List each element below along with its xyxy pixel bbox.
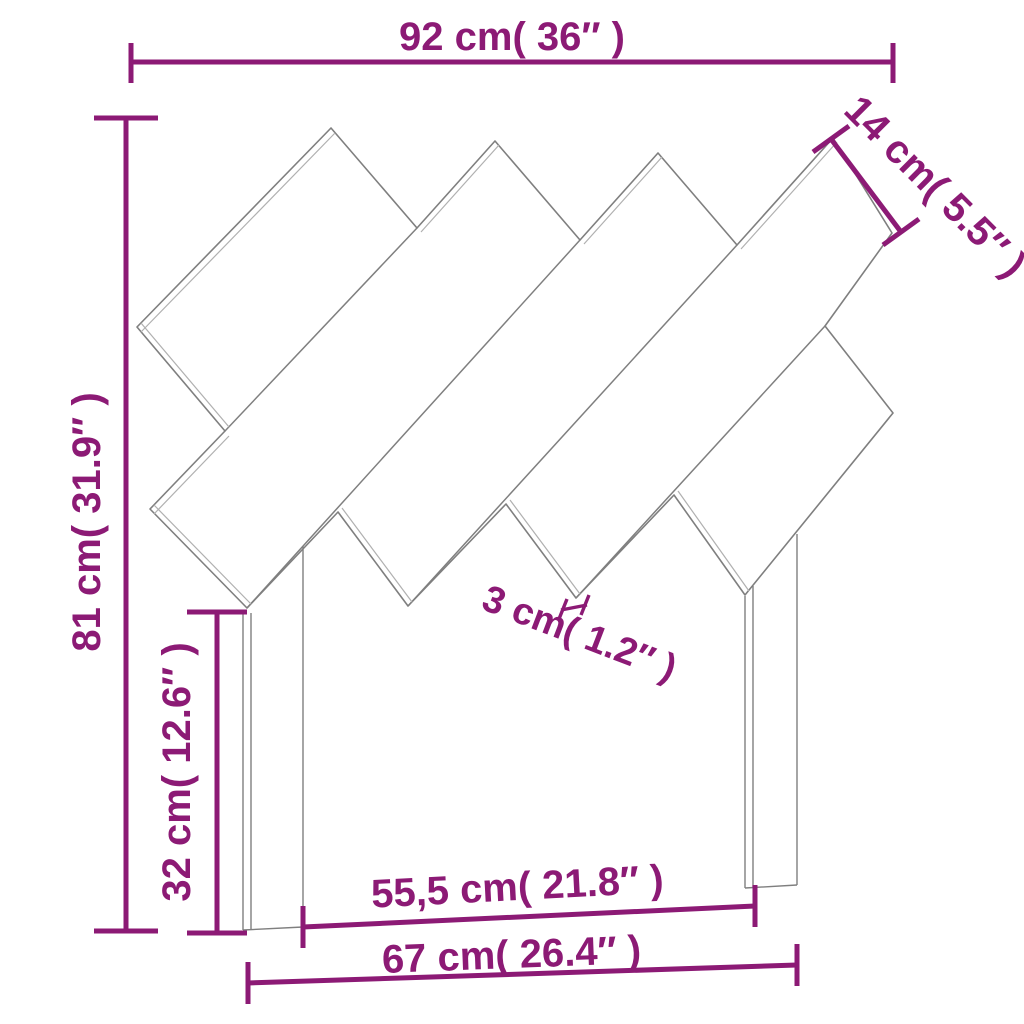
overall-height-dimension: 81 cm( 31.9″ ): [65, 118, 158, 931]
overall-width-label: 92 cm( 36″ ): [399, 15, 625, 59]
diagram-canvas: 92 cm( 36″ ) 14 cm( 5.5″ ) 81 cm( 31.9″ …: [0, 0, 1024, 1024]
leg-height-label: 32 cm( 12.6″ ): [155, 642, 199, 901]
leg-height-dimension: 32 cm( 12.6″ ): [155, 612, 247, 933]
inner-span-label: 55,5 cm( 21.8″ ): [370, 857, 665, 916]
overall-height-label: 81 cm( 31.9″ ): [65, 392, 109, 651]
headboard-dimension-diagram: 92 cm( 36″ ) 14 cm( 5.5″ ) 81 cm( 31.9″ …: [0, 0, 1024, 1024]
headboard-panel-outline: [137, 128, 893, 608]
right-leg: [745, 534, 797, 888]
overall-width-dimension: 92 cm( 36″ ): [131, 15, 893, 83]
outer-span-label: 67 cm( 26.4″ ): [381, 928, 642, 982]
outer-span-dimension: 67 cm( 26.4″ ): [248, 928, 797, 1004]
